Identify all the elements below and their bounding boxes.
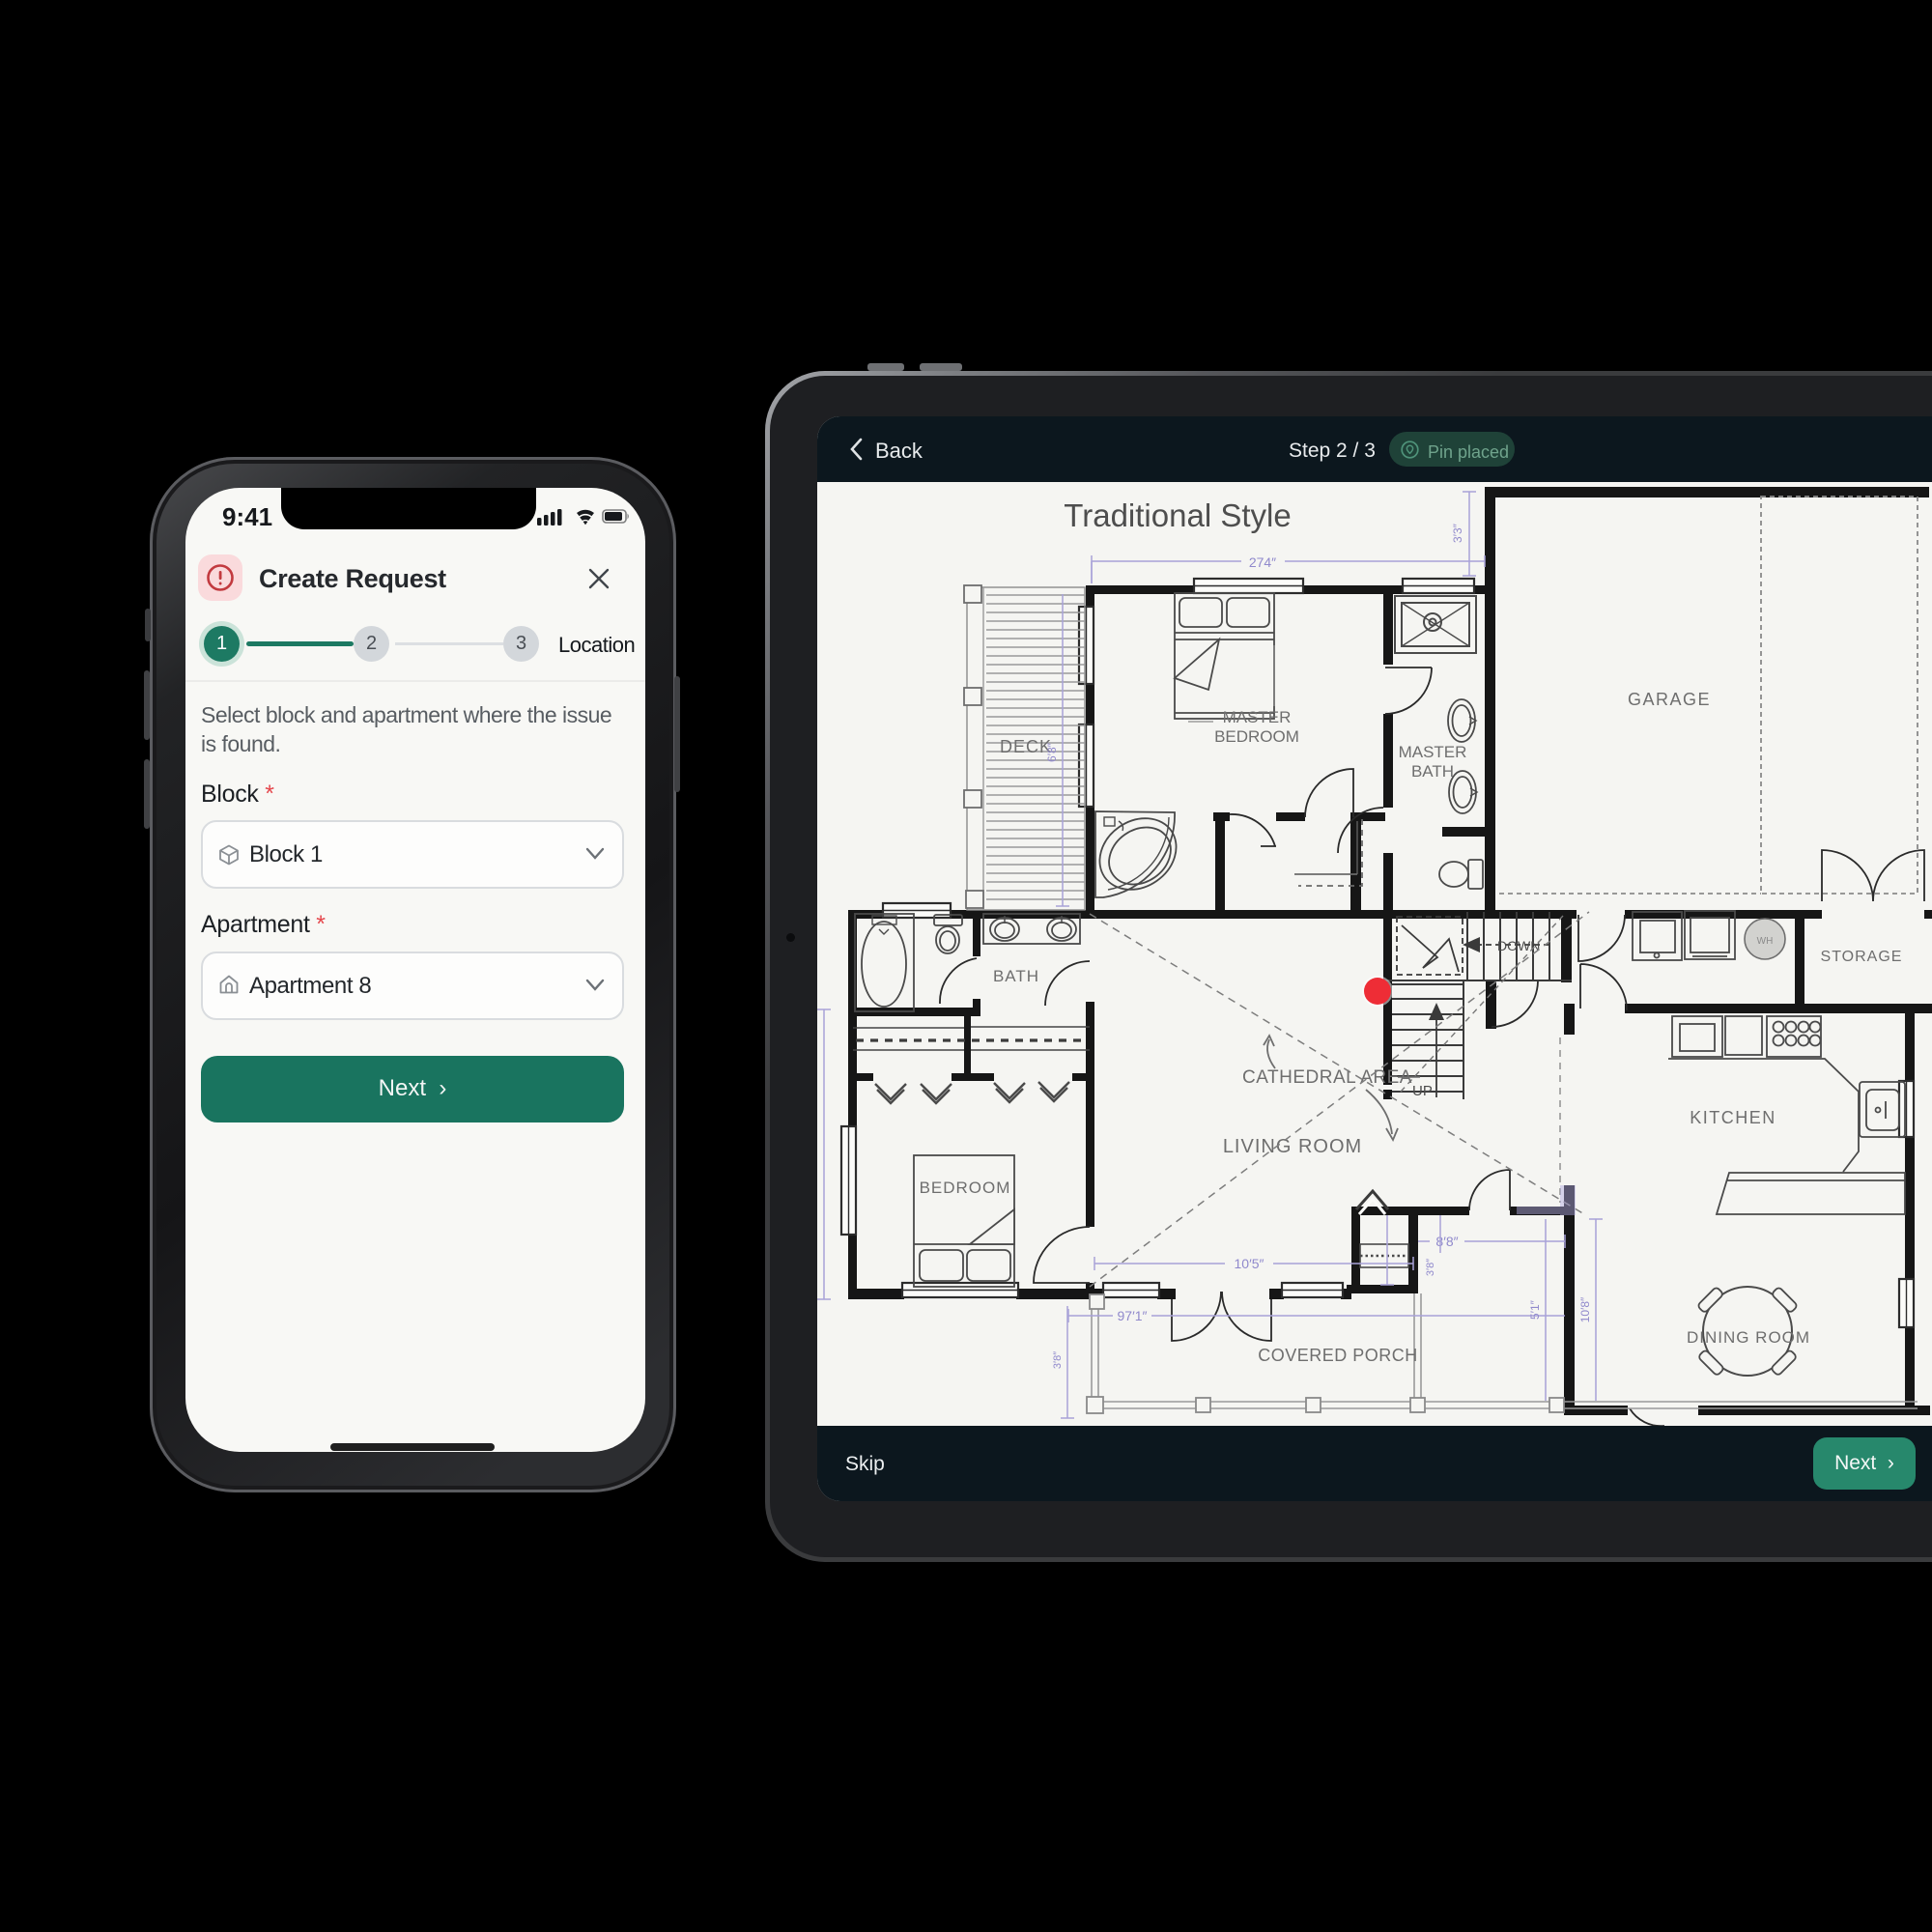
svg-text:5′1″: 5′1″ [1528,1299,1542,1320]
svg-text:DOWN: DOWN [1497,938,1540,953]
svg-text:MASTER: MASTER [1223,708,1292,726]
svg-text:8′8″: 8′8″ [1435,1234,1458,1249]
svg-text:LIVING ROOM: LIVING ROOM [1223,1136,1362,1157]
svg-text:BEDROOM: BEDROOM [920,1179,1011,1197]
svg-text:COVERED PORCH: COVERED PORCH [1258,1346,1418,1365]
svg-text:UP: UP [1412,1083,1433,1099]
svg-text:10′5″: 10′5″ [1235,1256,1264,1271]
svg-text:STORAGE: STORAGE [1821,949,1903,965]
svg-text:KITCHEN: KITCHEN [1690,1108,1776,1127]
svg-text:DECK: DECK [1000,737,1052,756]
svg-text:BATH: BATH [1411,762,1454,781]
svg-text:WH: WH [1757,936,1774,947]
svg-text:MASTER: MASTER [1399,743,1467,761]
svg-text:DINING ROOM: DINING ROOM [1687,1328,1810,1347]
svg-text:GARAGE: GARAGE [1628,690,1711,709]
svg-text:Traditional Style: Traditional Style [1064,497,1291,533]
svg-text:BEDROOM: BEDROOM [1214,727,1299,746]
svg-text:BATH: BATH [993,967,1039,985]
svg-text:3′8″: 3′8″ [1425,1259,1436,1276]
svg-text:97′1″: 97′1″ [1118,1308,1148,1323]
svg-text:3′3″: 3′3″ [1451,523,1464,543]
svg-text:10′8″: 10′8″ [1578,1296,1592,1322]
svg-text:3′8″: 3′8″ [1052,1351,1064,1369]
svg-text:274″: 274″ [1249,554,1276,570]
svg-text:CATHEDRAL AREA: CATHEDRAL AREA [1242,1067,1412,1088]
svg-text:6′8″: 6′8″ [1045,742,1059,762]
svg-text:10′: 10′ [817,1142,820,1157]
